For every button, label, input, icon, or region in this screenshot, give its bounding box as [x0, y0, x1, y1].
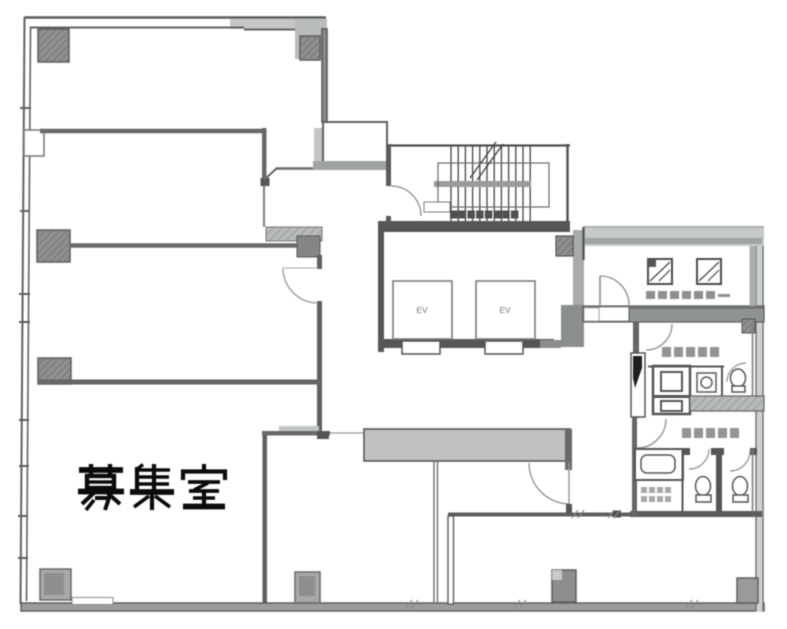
svg-text:EV: EV — [499, 305, 511, 315]
svg-text:EV: EV — [416, 305, 428, 315]
